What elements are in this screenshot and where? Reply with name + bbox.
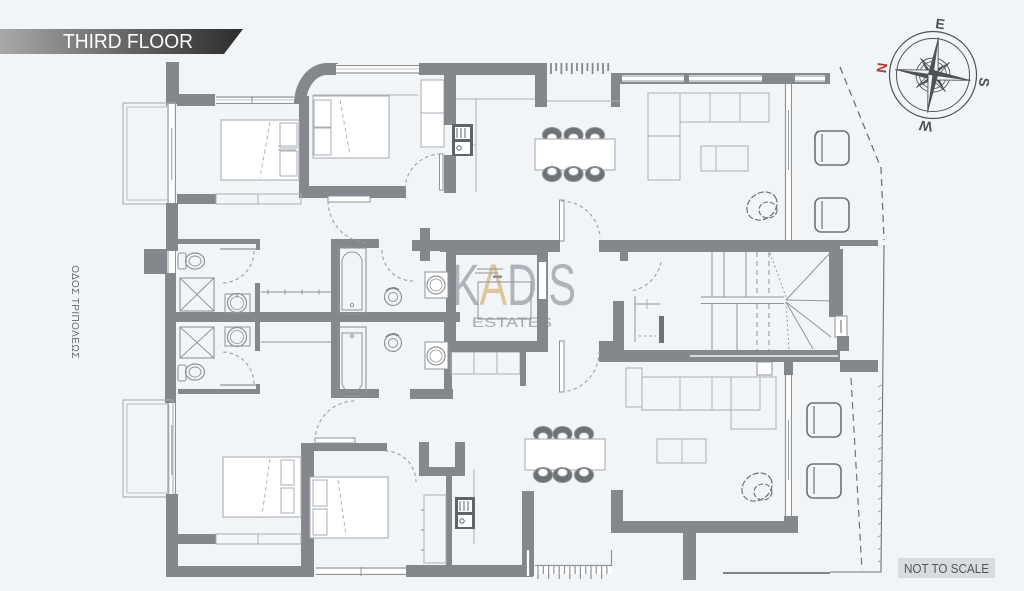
svg-text:E: E [934,15,945,32]
svg-text:KADIS: KADIS [452,253,576,318]
svg-text:NOT TO SCALE: NOT TO SCALE [904,562,989,576]
svg-text:W: W [917,117,933,135]
svg-text:ΟΔΟΣ ΤΡΙΠΟΛΕΩΣ: ΟΔΟΣ ΤΡΙΠΟΛΕΩΣ [69,265,80,359]
svg-text:S: S [976,76,993,87]
svg-text:THIRD FLOOR: THIRD FLOOR [63,31,193,53]
svg-text:N: N [873,62,890,74]
